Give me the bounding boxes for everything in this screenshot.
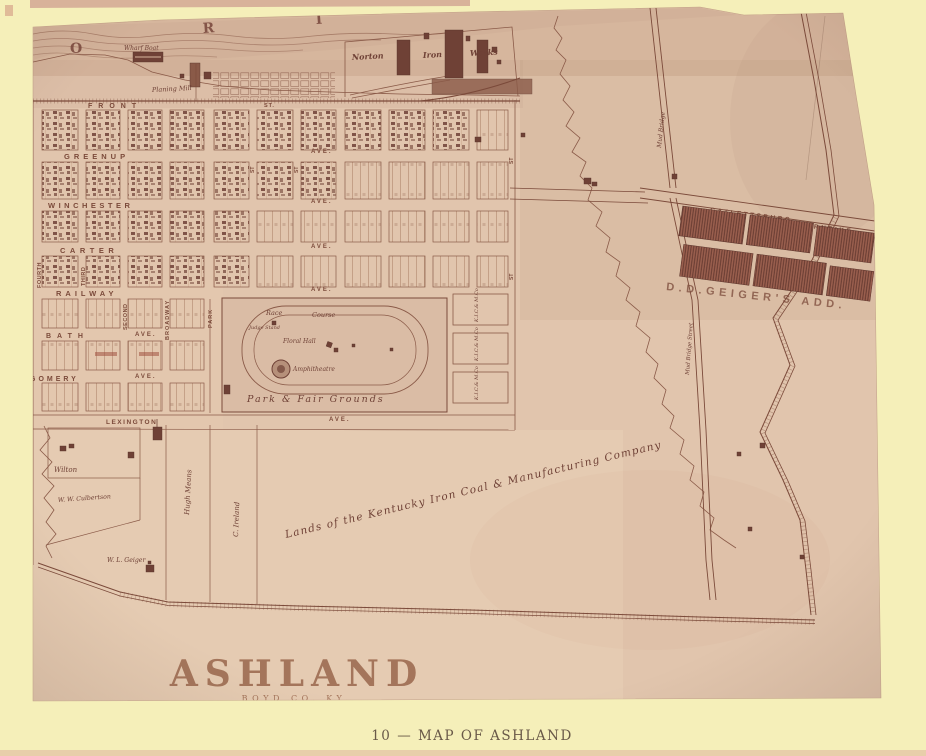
atlas-page: O R I Wharf Boat Planing Mill (0, 0, 926, 756)
map-sheet-content: O R I Wharf Boat Planing Mill (30, 0, 910, 714)
margin-mark (5, 5, 13, 16)
page-bottom-edge (0, 750, 926, 756)
scan-vignette (33, 7, 881, 701)
page-caption: 10 — MAP OF ASHLAND (371, 728, 573, 744)
ashland-map-scan: O R I Wharf Boat Planing Mill (0, 0, 926, 756)
